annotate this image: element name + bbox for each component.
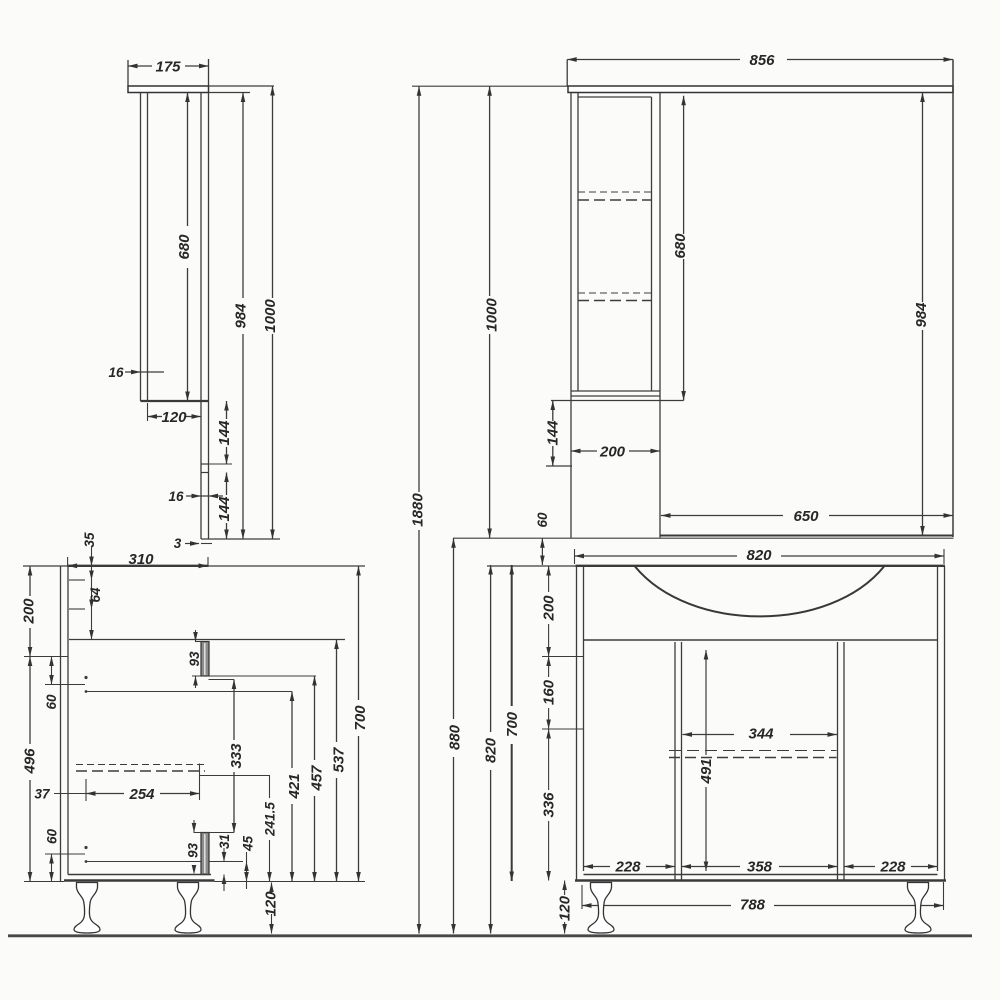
- svg-text:37: 37: [34, 786, 51, 801]
- svg-text:1000: 1000: [483, 298, 500, 332]
- svg-text:1880: 1880: [409, 493, 426, 527]
- svg-text:228: 228: [614, 858, 641, 875]
- svg-text:1000: 1000: [262, 299, 279, 333]
- svg-text:64: 64: [88, 587, 103, 603]
- svg-text:120: 120: [556, 895, 573, 921]
- svg-text:254: 254: [128, 786, 155, 803]
- svg-text:93: 93: [185, 843, 200, 859]
- svg-text:984: 984: [232, 303, 249, 329]
- svg-text:60: 60: [535, 512, 550, 528]
- svg-text:200: 200: [540, 595, 557, 622]
- svg-text:60: 60: [44, 694, 59, 710]
- svg-text:333: 333: [228, 743, 245, 769]
- svg-text:457: 457: [308, 765, 325, 792]
- svg-text:35: 35: [82, 532, 97, 548]
- svg-text:16: 16: [108, 365, 124, 380]
- svg-text:680: 680: [672, 233, 689, 259]
- svg-text:160: 160: [540, 679, 557, 705]
- svg-text:200: 200: [599, 443, 626, 460]
- svg-text:880: 880: [446, 724, 463, 750]
- svg-text:144: 144: [216, 496, 233, 522]
- svg-text:144: 144: [544, 420, 561, 446]
- svg-text:537: 537: [330, 747, 347, 773]
- svg-text:491: 491: [698, 758, 715, 784]
- svg-text:60: 60: [44, 829, 59, 845]
- svg-text:984: 984: [913, 302, 930, 328]
- svg-text:680: 680: [176, 234, 193, 260]
- svg-text:700: 700: [352, 705, 369, 731]
- svg-text:120: 120: [161, 409, 187, 426]
- svg-text:358: 358: [747, 858, 773, 875]
- svg-text:344: 344: [748, 725, 774, 742]
- svg-text:120: 120: [262, 891, 279, 917]
- svg-text:31: 31: [217, 834, 232, 849]
- svg-text:144: 144: [216, 420, 233, 446]
- svg-text:856: 856: [749, 52, 775, 69]
- svg-text:496: 496: [21, 748, 38, 775]
- svg-text:93: 93: [187, 651, 202, 667]
- svg-text:336: 336: [540, 792, 557, 818]
- svg-text:16: 16: [168, 489, 184, 504]
- svg-text:45: 45: [240, 836, 255, 853]
- svg-text:650: 650: [793, 508, 819, 525]
- svg-text:820: 820: [746, 547, 772, 564]
- svg-text:200: 200: [20, 598, 37, 625]
- svg-text:700: 700: [504, 711, 521, 737]
- svg-text:421: 421: [286, 773, 303, 799]
- svg-text:820: 820: [482, 737, 499, 763]
- svg-text:241.5: 241.5: [262, 802, 277, 837]
- svg-text:3: 3: [174, 536, 182, 551]
- svg-text:788: 788: [740, 896, 766, 913]
- svg-text:310: 310: [128, 551, 154, 568]
- svg-text:175: 175: [155, 58, 181, 75]
- svg-text:228: 228: [879, 858, 906, 875]
